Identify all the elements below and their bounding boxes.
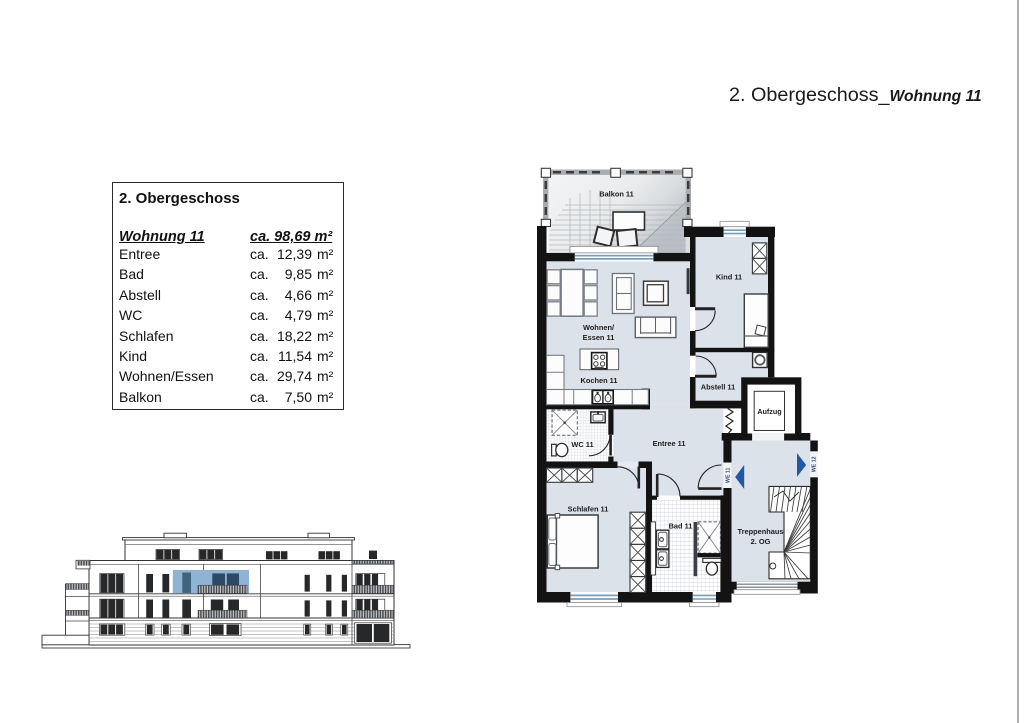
- svg-text:Schlafen 11: Schlafen 11: [568, 505, 609, 514]
- svg-text:Essen 11: Essen 11: [583, 333, 615, 342]
- svg-text:Bad 11: Bad 11: [669, 521, 693, 530]
- svg-text:Abstell 11: Abstell 11: [701, 382, 736, 391]
- svg-text:Treppenhaus: Treppenhaus: [738, 527, 784, 536]
- svg-text:WC 11: WC 11: [571, 440, 593, 449]
- svg-text:Entree 11: Entree 11: [653, 439, 686, 448]
- svg-text:Kochen 11: Kochen 11: [581, 376, 618, 385]
- svg-text:WE 11: WE 11: [725, 468, 731, 483]
- svg-text:Aufzug: Aufzug: [757, 407, 781, 416]
- svg-text:2. OG: 2. OG: [751, 537, 771, 546]
- svg-text:Balkon 11: Balkon 11: [599, 190, 634, 199]
- svg-text:WE 12: WE 12: [812, 456, 818, 472]
- svg-text:Wohnen/: Wohnen/: [583, 323, 614, 332]
- svg-text:Kind 11: Kind 11: [716, 273, 742, 282]
